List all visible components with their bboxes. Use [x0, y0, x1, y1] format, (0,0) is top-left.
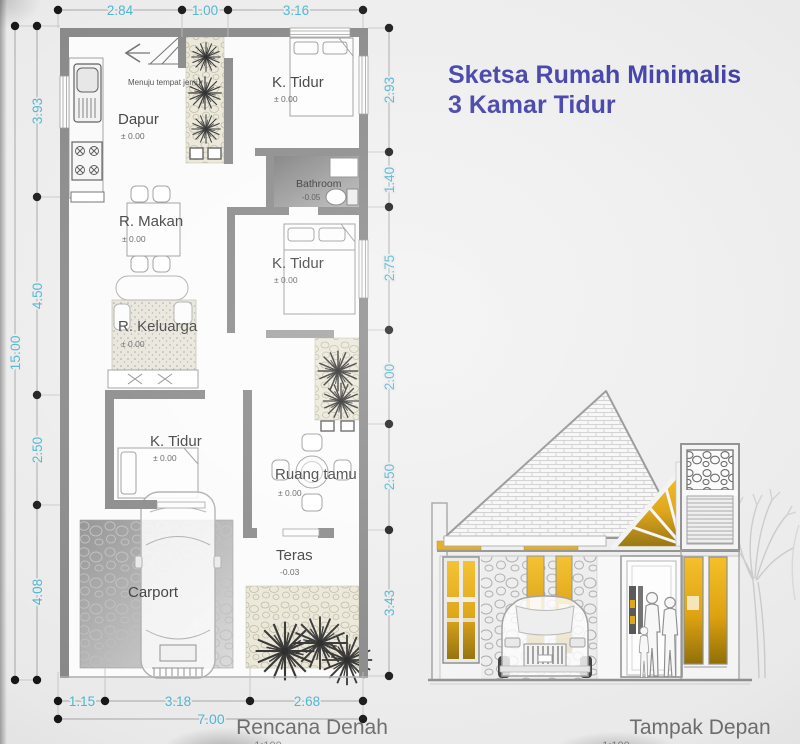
dim-right-5: 3.43	[382, 590, 397, 616]
palm-symbol	[293, 616, 346, 669]
elevation-scale-label: 1:100	[602, 740, 630, 744]
tower-louver-panel	[687, 496, 733, 544]
room-label-rkeluarga: R. Keluarga	[118, 318, 198, 335]
plan-sheet-label: Rencana Denah	[236, 716, 388, 739]
page-title-line2: 3 Kamar Tidur	[448, 91, 616, 119]
plant-symbol	[191, 42, 220, 71]
plant-symbol	[191, 114, 220, 143]
plant-symbol	[318, 351, 359, 392]
room-level-ruangtamu: ± 0.00	[278, 488, 302, 498]
room-label-ruangtamu: Ruang tamu	[275, 466, 357, 483]
floor-plan: Dapur ± 0.00 Menuju tempat jemur K. Tidu…	[60, 28, 372, 685]
door-handle-plate	[629, 586, 636, 634]
room-label-bathroom: Bathroom	[296, 178, 342, 190]
car-headlight	[505, 638, 520, 647]
dim-left-2: 2.50	[30, 437, 45, 463]
drawing-svg: Dapur ± 0.00 Menuju tempat jemur K. Tidu…	[0, 0, 800, 744]
dim-bottom-0: 1.15	[69, 694, 95, 709]
car-elevation	[498, 596, 592, 678]
room-label-teras: Teras	[276, 547, 313, 564]
dim-right-2: 2.75	[382, 255, 397, 281]
dim-top-1: 1.00	[192, 3, 218, 18]
dim-bottom-total: 7.00	[197, 711, 224, 727]
dim-bottom-2: 2.68	[294, 694, 320, 709]
room-label-ktidur2: K. Tidur	[272, 255, 324, 272]
left-window	[443, 557, 479, 663]
elevation-sheet-label: Tampak Depan	[629, 716, 770, 739]
dim-left-0: 3.93	[30, 98, 45, 124]
dim-bottom-1: 3.18	[165, 694, 191, 709]
dim-left-total: 15.00	[7, 335, 23, 370]
car-bumper	[500, 666, 590, 672]
eave-fascia	[444, 536, 606, 546]
garden-strip-right	[315, 338, 359, 431]
dim-right-1: 1.40	[382, 167, 397, 193]
room-level-ktidur3: ± 0.00	[153, 453, 177, 463]
plant-symbol	[323, 383, 359, 419]
porch-pillar	[597, 556, 621, 680]
dim-right-0: 2.93	[382, 77, 397, 103]
palm-symbol	[256, 622, 315, 681]
garden-strip-top	[186, 37, 224, 163]
room-label-rmakan: R. Makan	[119, 213, 183, 230]
room-label-carport: Carport	[128, 584, 179, 601]
room-level-rmakan: ± 0.00	[122, 234, 146, 244]
room-level-bathroom: -0.05	[302, 193, 321, 202]
dim-right-3: 2.00	[382, 364, 397, 390]
dim-top-2: 3.16	[283, 3, 309, 18]
room-level-ktidur2: ± 0.00	[274, 275, 298, 285]
tower	[681, 444, 739, 550]
tower-pebble-panel	[687, 450, 733, 490]
page-title-line1: Sketsa Rumah Minimalis	[448, 61, 741, 89]
dim-left-3: 4.08	[30, 579, 45, 605]
front-elevation	[428, 391, 799, 684]
room-level-dapur: ± 0.00	[121, 131, 145, 141]
architectural-sheet: Dapur ± 0.00 Menuju tempat jemur K. Tidu…	[0, 0, 800, 744]
annotation-jemur: Menuju tempat jemur	[128, 78, 203, 87]
room-level-ktidur1: ± 0.00	[274, 94, 298, 104]
room-level-rkeluarga: ± 0.00	[121, 339, 145, 349]
car-plate	[538, 655, 552, 662]
dim-top-0: 2.84	[107, 3, 134, 18]
room-label-ktidur3: K. Tidur	[150, 433, 202, 450]
plan-scale-label: 1:100	[254, 740, 282, 744]
room-label-dapur: Dapur	[118, 111, 159, 128]
dim-left-1: 4.50	[30, 283, 45, 309]
dim-right-4: 2.50	[382, 464, 397, 490]
room-label-ktidur1: K. Tidur	[272, 74, 324, 91]
car-headlight	[570, 638, 585, 647]
room-level-teras: -0.03	[280, 567, 300, 577]
kitchen-counter	[69, 58, 104, 202]
